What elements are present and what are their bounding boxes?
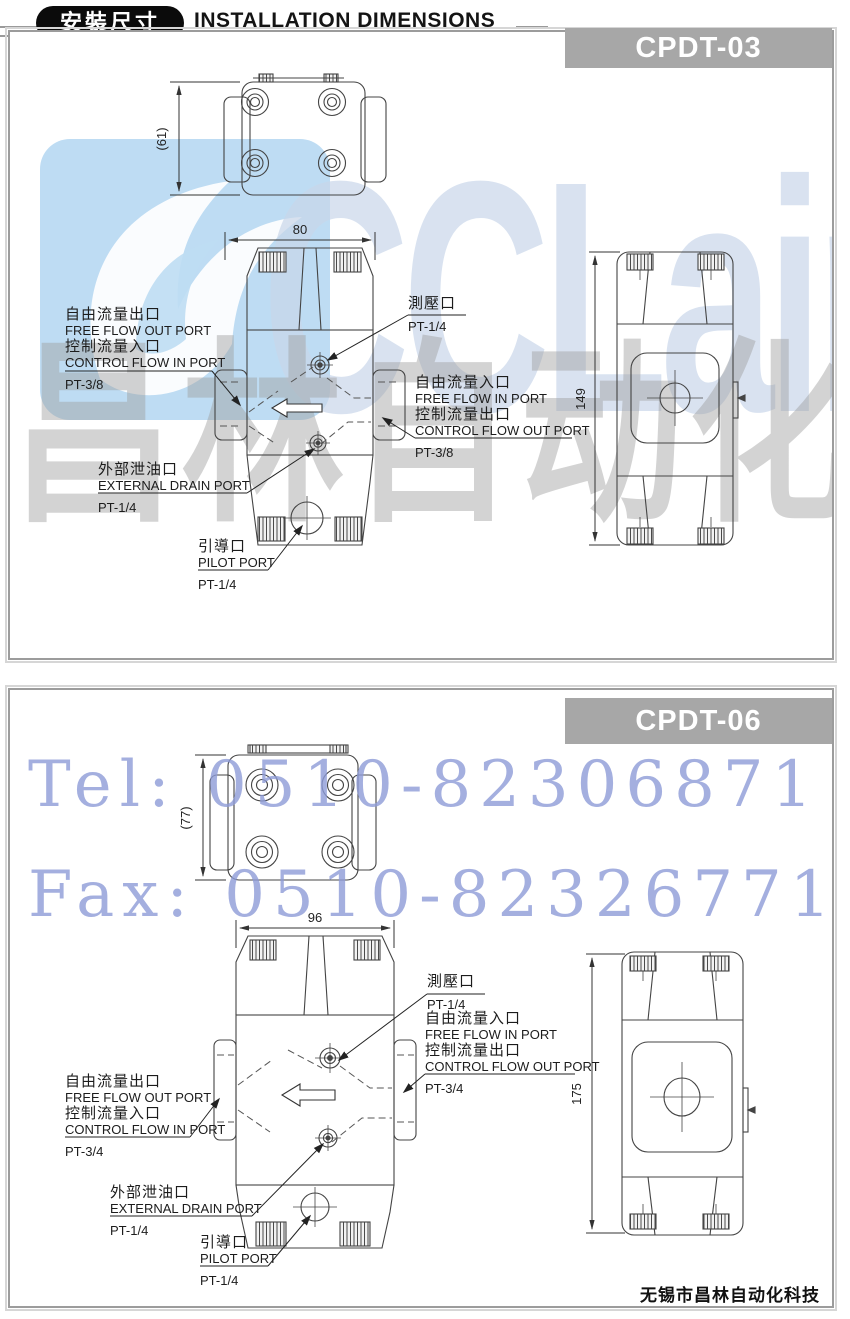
label-gauge-port-cpdt-03: 測壓口 PT-1/4 xyxy=(408,295,456,334)
dim-front-width-cpdt-06: 96 xyxy=(308,910,322,925)
side-view-cpdt-03 xyxy=(617,252,745,545)
dim-top-height-cpdt-06: (77) xyxy=(178,806,193,829)
dim-149 xyxy=(589,252,620,545)
label-free-flow-in-cpdt-06: 自由流量入口 FREE FLOW IN PORT 控制流量出口 CONTROL … xyxy=(425,1010,600,1096)
side-view-cpdt-06 xyxy=(622,952,755,1235)
dim-front-width-cpdt-03: 80 xyxy=(293,222,307,237)
label-drain-port-cpdt-03: 外部泄油口 EXTERNAL DRAIN PORT PT-1/4 xyxy=(98,461,250,515)
panel-cpdt-06: (77) xyxy=(8,688,834,1308)
model-banner-cpdt-06: CPDT-06 xyxy=(565,698,832,744)
model-banner-cpdt-03: CPDT-03 xyxy=(565,28,832,68)
label-pilot-port-cpdt-06: 引導口 PILOT PORT PT-1/4 xyxy=(200,1234,277,1288)
panel-cpdt-03-content: CCLair 昌林自动化 xyxy=(10,14,832,658)
panel-cpdt-03: CCLair 昌林自动化 xyxy=(8,30,834,660)
label-pilot-port-cpdt-03: 引導口 PILOT PORT PT-1/4 xyxy=(198,538,275,592)
label-gauge-port-cpdt-06: 測壓口 PT-1/4 xyxy=(427,973,475,1012)
dim-61 xyxy=(170,82,240,195)
company-name: 无锡市昌林自动化科技 xyxy=(640,1281,820,1306)
dim-top-height-cpdt-03: (61) xyxy=(154,127,169,150)
catalog-page: { "header": { "badge": "安裝尺寸", "title": … xyxy=(0,0,850,1319)
label-free-flow-out-cpdt-03: 自由流量出口 FREE FLOW OUT PORT 控制流量入口 CONTROL… xyxy=(65,306,225,392)
label-free-flow-out-cpdt-06: 自由流量出口 FREE FLOW OUT PORT 控制流量入口 CONTROL… xyxy=(65,1073,225,1159)
top-view-cpdt-06 xyxy=(210,745,376,880)
label-free-flow-in-cpdt-03: 自由流量入口 FREE FLOW IN PORT 控制流量出口 CONTROL … xyxy=(415,374,590,460)
label-drain-port-cpdt-06: 外部泄油口 EXTERNAL DRAIN PORT PT-1/4 xyxy=(110,1184,262,1238)
top-view-cpdt-03 xyxy=(224,74,386,195)
